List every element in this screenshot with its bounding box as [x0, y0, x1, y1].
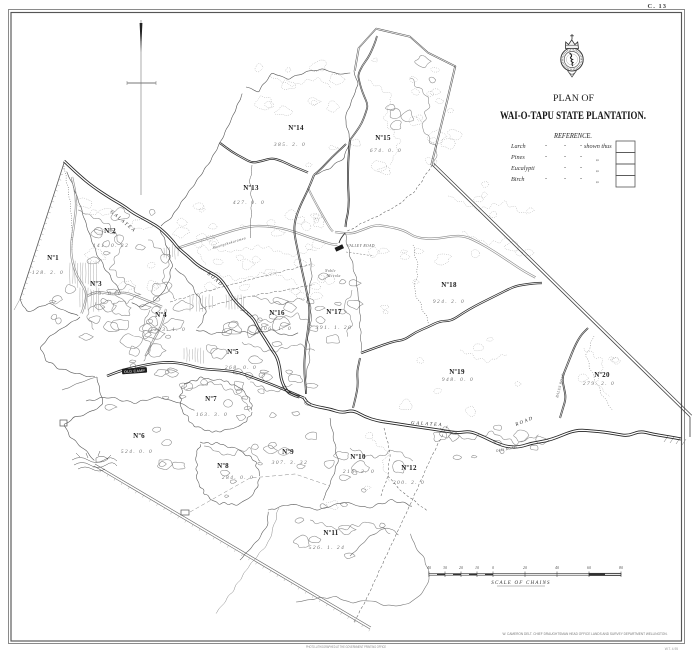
- svg-text:Birch: Birch: [511, 176, 525, 183]
- svg-text:20: 20: [523, 565, 527, 570]
- svg-text:Nº19: Nº19: [449, 368, 465, 376]
- svg-text:-: -: [580, 164, 582, 171]
- svg-text:141. 0. 32: 141. 0. 32: [93, 243, 130, 249]
- svg-text:PHOTO-LITHOGRAPHED AT THE GOVE: PHOTO-LITHOGRAPHED AT THE GOVERNMENT PRI…: [306, 645, 386, 649]
- svg-text:391. 1. 20: 391. 1. 20: [315, 325, 353, 331]
- svg-text:Nº2: Nº2: [104, 227, 116, 235]
- svg-text:-: -: [564, 153, 566, 160]
- svg-text:Nº1: Nº1: [47, 254, 59, 262]
- svg-text:W. CAMERON DELT. CHIEF DRAUGHT: W. CAMERON DELT. CHIEF DRAUGHTSMAN HEAD …: [503, 632, 668, 636]
- svg-text:-: -: [580, 153, 582, 160]
- svg-text:40: 40: [555, 565, 559, 570]
- svg-text:VALLEY ROAD: VALLEY ROAD: [347, 244, 375, 248]
- svg-text:„: „: [596, 155, 599, 162]
- svg-text:526. 1. 24: 526. 1. 24: [309, 545, 346, 551]
- svg-text:323. 1. 0: 323. 1. 0: [153, 327, 186, 333]
- svg-text:Larch: Larch: [510, 143, 526, 150]
- svg-text:Noble: Noble: [324, 269, 336, 273]
- svg-text:Nº13: Nº13: [243, 184, 259, 192]
- svg-text:674. 0. 0: 674. 0. 0: [370, 148, 402, 154]
- svg-text:0: 0: [492, 565, 494, 570]
- svg-text:Nº5: Nº5: [227, 348, 239, 356]
- svg-text:Nº6: Nº6: [133, 432, 145, 440]
- svg-text:279. 2. 0: 279. 2. 0: [583, 381, 615, 387]
- svg-text:10: 10: [475, 565, 479, 570]
- svg-text:SCALE OF CHAINS: SCALE OF CHAINS: [491, 581, 550, 586]
- svg-text:20: 20: [459, 565, 463, 570]
- svg-text:-: -: [580, 175, 582, 182]
- svg-text:Nº11: Nº11: [323, 529, 338, 537]
- svg-text:948. 0. 0: 948. 0. 0: [442, 377, 474, 383]
- svg-text:Nº15: Nº15: [375, 134, 391, 142]
- svg-text:Viccola: Viccola: [327, 274, 341, 278]
- svg-text:PLAN OF: PLAN OF: [553, 93, 594, 103]
- svg-text:-: -: [545, 175, 547, 182]
- svg-text:40: 40: [427, 565, 431, 570]
- svg-text:215. 2. 0: 215. 2. 0: [343, 469, 375, 475]
- svg-text:179. 0. 0: 179. 0. 0: [90, 291, 122, 297]
- svg-text:-: -: [545, 142, 547, 149]
- svg-text:Nº12: Nº12: [401, 464, 417, 472]
- svg-text:REFERENCE.: REFERENCE.: [553, 131, 592, 140]
- svg-text:Nº18: Nº18: [441, 281, 457, 289]
- svg-text:Nº8: Nº8: [217, 462, 229, 470]
- svg-text:385. 2. 0: 385. 2. 0: [273, 142, 306, 148]
- svg-text:60: 60: [587, 565, 591, 570]
- svg-text:Eucalypti: Eucalypti: [510, 165, 535, 172]
- svg-text:-: -: [564, 142, 566, 149]
- svg-text:200. 2. 0: 200. 2. 0: [393, 480, 425, 486]
- svg-text:268. 0. 0: 268. 0. 0: [225, 365, 257, 371]
- svg-text:-: -: [545, 153, 547, 160]
- svg-text:Nº17: Nº17: [326, 308, 342, 316]
- svg-text:284. 0. 0: 284. 0. 0: [222, 475, 254, 481]
- svg-text:„: „: [596, 177, 599, 184]
- svg-text:524. 0. 0: 524. 0. 0: [121, 449, 153, 455]
- svg-text:-: -: [580, 142, 582, 149]
- svg-text:-: -: [564, 175, 566, 182]
- svg-text:Nº4: Nº4: [155, 311, 167, 319]
- svg-text:W.T. 4.95: W.T. 4.95: [665, 647, 679, 651]
- svg-text:Nº14: Nº14: [288, 124, 304, 132]
- svg-text:80: 80: [619, 565, 623, 570]
- svg-text:-: -: [564, 164, 566, 171]
- svg-text:427. 0. 0: 427. 0. 0: [233, 200, 265, 206]
- svg-text:Nº16: Nº16: [269, 309, 285, 317]
- svg-text:163. 3. 0: 163. 3. 0: [196, 412, 228, 418]
- svg-text:Nº20: Nº20: [594, 371, 610, 379]
- svg-text:„: „: [596, 166, 599, 173]
- svg-text:406. 1. 0: 406. 1. 0: [260, 326, 292, 332]
- svg-text:307. 3. 32: 307. 3. 32: [271, 460, 309, 466]
- svg-text:Nº10: Nº10: [350, 453, 366, 461]
- svg-text:Nº9: Nº9: [282, 448, 294, 456]
- svg-text:Pines: Pines: [510, 154, 525, 161]
- svg-text:C. 13: C. 13: [648, 3, 667, 10]
- svg-text:Nº7: Nº7: [205, 395, 217, 403]
- svg-text:shown thus: shown thus: [584, 143, 612, 150]
- svg-text:924. 2. 0: 924. 2. 0: [433, 299, 465, 305]
- svg-text:WAI-O-TAPU STATE PLANTATION.: WAI-O-TAPU STATE PLANTATION.: [500, 108, 646, 122]
- svg-text:Nº3: Nº3: [90, 280, 102, 288]
- svg-text:128. 2. 0: 128. 2. 0: [32, 270, 64, 276]
- svg-text:30: 30: [443, 565, 447, 570]
